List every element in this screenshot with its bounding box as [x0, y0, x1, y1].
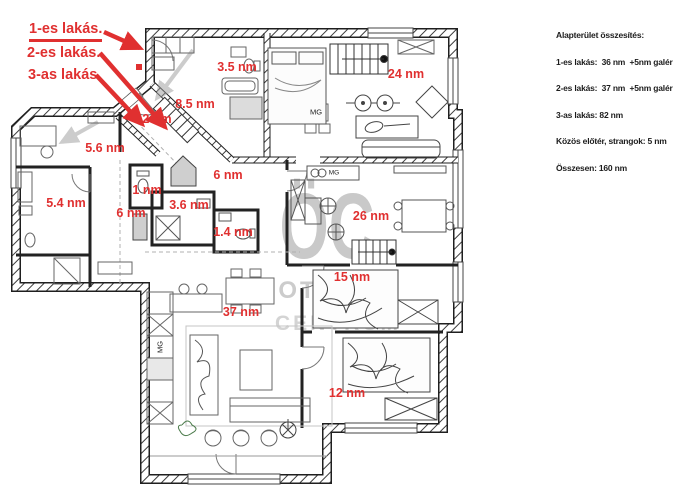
room-label-26nm: 26 nm — [353, 209, 389, 223]
room-label-1nm: 1 nm — [132, 183, 161, 197]
stairs-top — [330, 44, 388, 74]
summary-line-apartment2: 2-es lakás: 37 nm +5nm galéria — [556, 83, 673, 93]
washing-machine-label-2: MG — [329, 170, 339, 177]
area-summary: Alapterület összesítés: 1-es lakás: 36 n… — [556, 30, 673, 189]
callout-apartment-2: 2-es lakás. — [27, 46, 100, 61]
room-label-5-6nm: 5.6 nm — [85, 141, 125, 155]
summary-line-total: Összesen: 160 nm — [556, 163, 673, 173]
summary-title: Alapterület összesítés: — [556, 30, 673, 40]
room-label-3-6nm: 3.6 nm — [169, 198, 209, 212]
summary-line-apartment3: 3-as lakás: 82 nm — [556, 110, 673, 120]
room-label-6nm-lower: 6 nm — [116, 206, 145, 220]
summary-line-common: Közös előtér, strangok: 5 nm — [556, 136, 673, 146]
callout-apartment-3: 3-as lakás. — [28, 68, 101, 83]
floorplan-page: ÖC OTTHON CENTRUM — [0, 0, 673, 500]
room-label-15nm: 15 nm — [334, 270, 370, 284]
room-label-2nm: 2 nm — [142, 112, 171, 126]
room-label-5-4nm: 5.4 nm — [46, 196, 86, 210]
room-label-37nm: 37 nm — [223, 305, 259, 319]
room-label-12nm: 12 nm — [329, 386, 365, 400]
summary-line-apartment1: 1-es lakás: 36 nm +5nm galéria — [556, 57, 673, 67]
callout-apartment-1: 1-es lakás. — [29, 22, 102, 42]
room-label-3-5nm: 3.5 nm — [217, 60, 257, 74]
washing-machine-label-1: MG — [310, 108, 322, 117]
stairs-mid — [352, 240, 396, 264]
room-label-1-4nm: 1.4 nm — [213, 225, 253, 239]
washing-machine-label-3: MG — [156, 341, 165, 353]
room-label-6nm-upper: 6 nm — [213, 168, 242, 182]
room-label-8-5nm: 8.5 nm — [175, 97, 215, 111]
room-label-24nm: 24 nm — [388, 67, 424, 81]
